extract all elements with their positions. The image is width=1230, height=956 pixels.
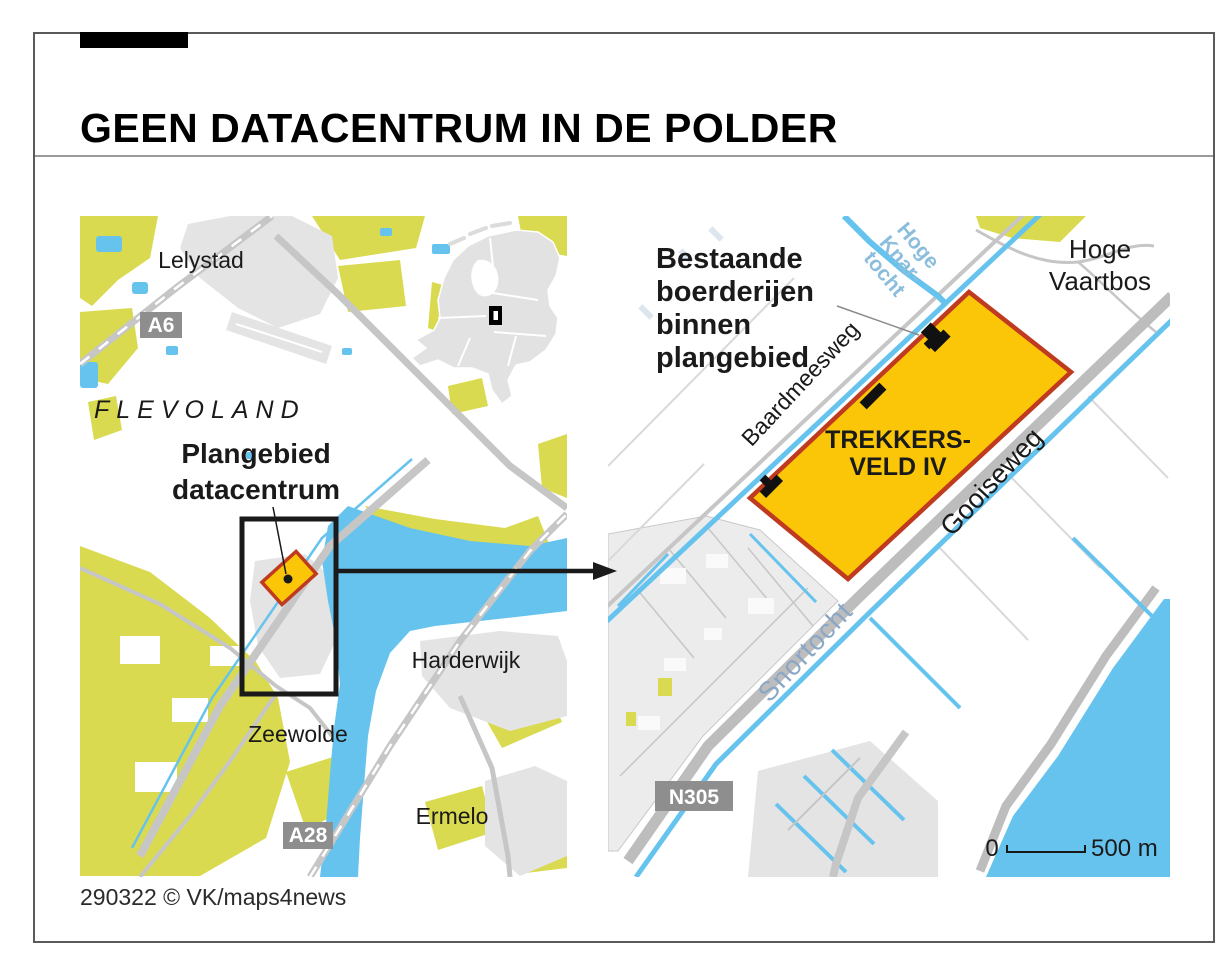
label-flevoland: FLEVOLAND [94, 396, 306, 424]
svg-text:N305: N305 [669, 786, 720, 809]
overview-map: Lelystad FLEVOLAND Plangebied datacentru… [80, 216, 567, 877]
svg-text:500 m: 500 m [1091, 835, 1158, 862]
label-trekkersveld-1: TREKKERS- [825, 426, 971, 454]
svg-text:binnen: binnen [656, 309, 751, 341]
label-zeewolde: Zeewolde [248, 721, 348, 747]
svg-text:boerderijen: boerderijen [656, 276, 814, 308]
label-trekkersveld-2: VELD IV [849, 453, 947, 481]
svg-text:A6: A6 [148, 314, 175, 337]
publisher-logo-bar [80, 32, 188, 48]
label-plangebied-1: Plangebied [181, 438, 330, 469]
label-hoge-vaartbos-2: Vaartbos [1049, 266, 1151, 296]
badge-a6: A6 [140, 312, 182, 338]
svg-text:Bestaande: Bestaande [656, 243, 803, 275]
infographic-frame: GEEN DATACENTRUM IN DE POLDER [33, 32, 1215, 943]
label-hoge-vaartbos-1: Hoge [1069, 234, 1131, 264]
svg-text:A28: A28 [289, 824, 328, 847]
residential-zone [748, 732, 938, 877]
badge-a28: A28 [283, 822, 333, 849]
page-title: GEEN DATACENTRUM IN DE POLDER [80, 105, 838, 152]
detail-map: Bestaande boerderijen binnen plangebied … [608, 216, 1170, 877]
annotation-existing-farms: Bestaande boerderijen binnen plangebied [656, 243, 814, 374]
label-plangebied-2: datacentrum [172, 474, 340, 505]
label-ermelo: Ermelo [416, 803, 489, 829]
title-separator [35, 155, 1213, 157]
extent-arrow-icon [335, 560, 625, 582]
inset-location-marker [489, 306, 502, 325]
label-lelystad: Lelystad [158, 247, 244, 273]
label-harderwijk: Harderwijk [412, 647, 521, 673]
plan-dot [284, 575, 293, 584]
credit-line: 290322 © VK/maps4news [80, 884, 346, 911]
badge-n305: N305 [655, 781, 733, 811]
svg-text:plangebied: plangebied [656, 342, 809, 374]
svg-text:0: 0 [985, 835, 998, 862]
